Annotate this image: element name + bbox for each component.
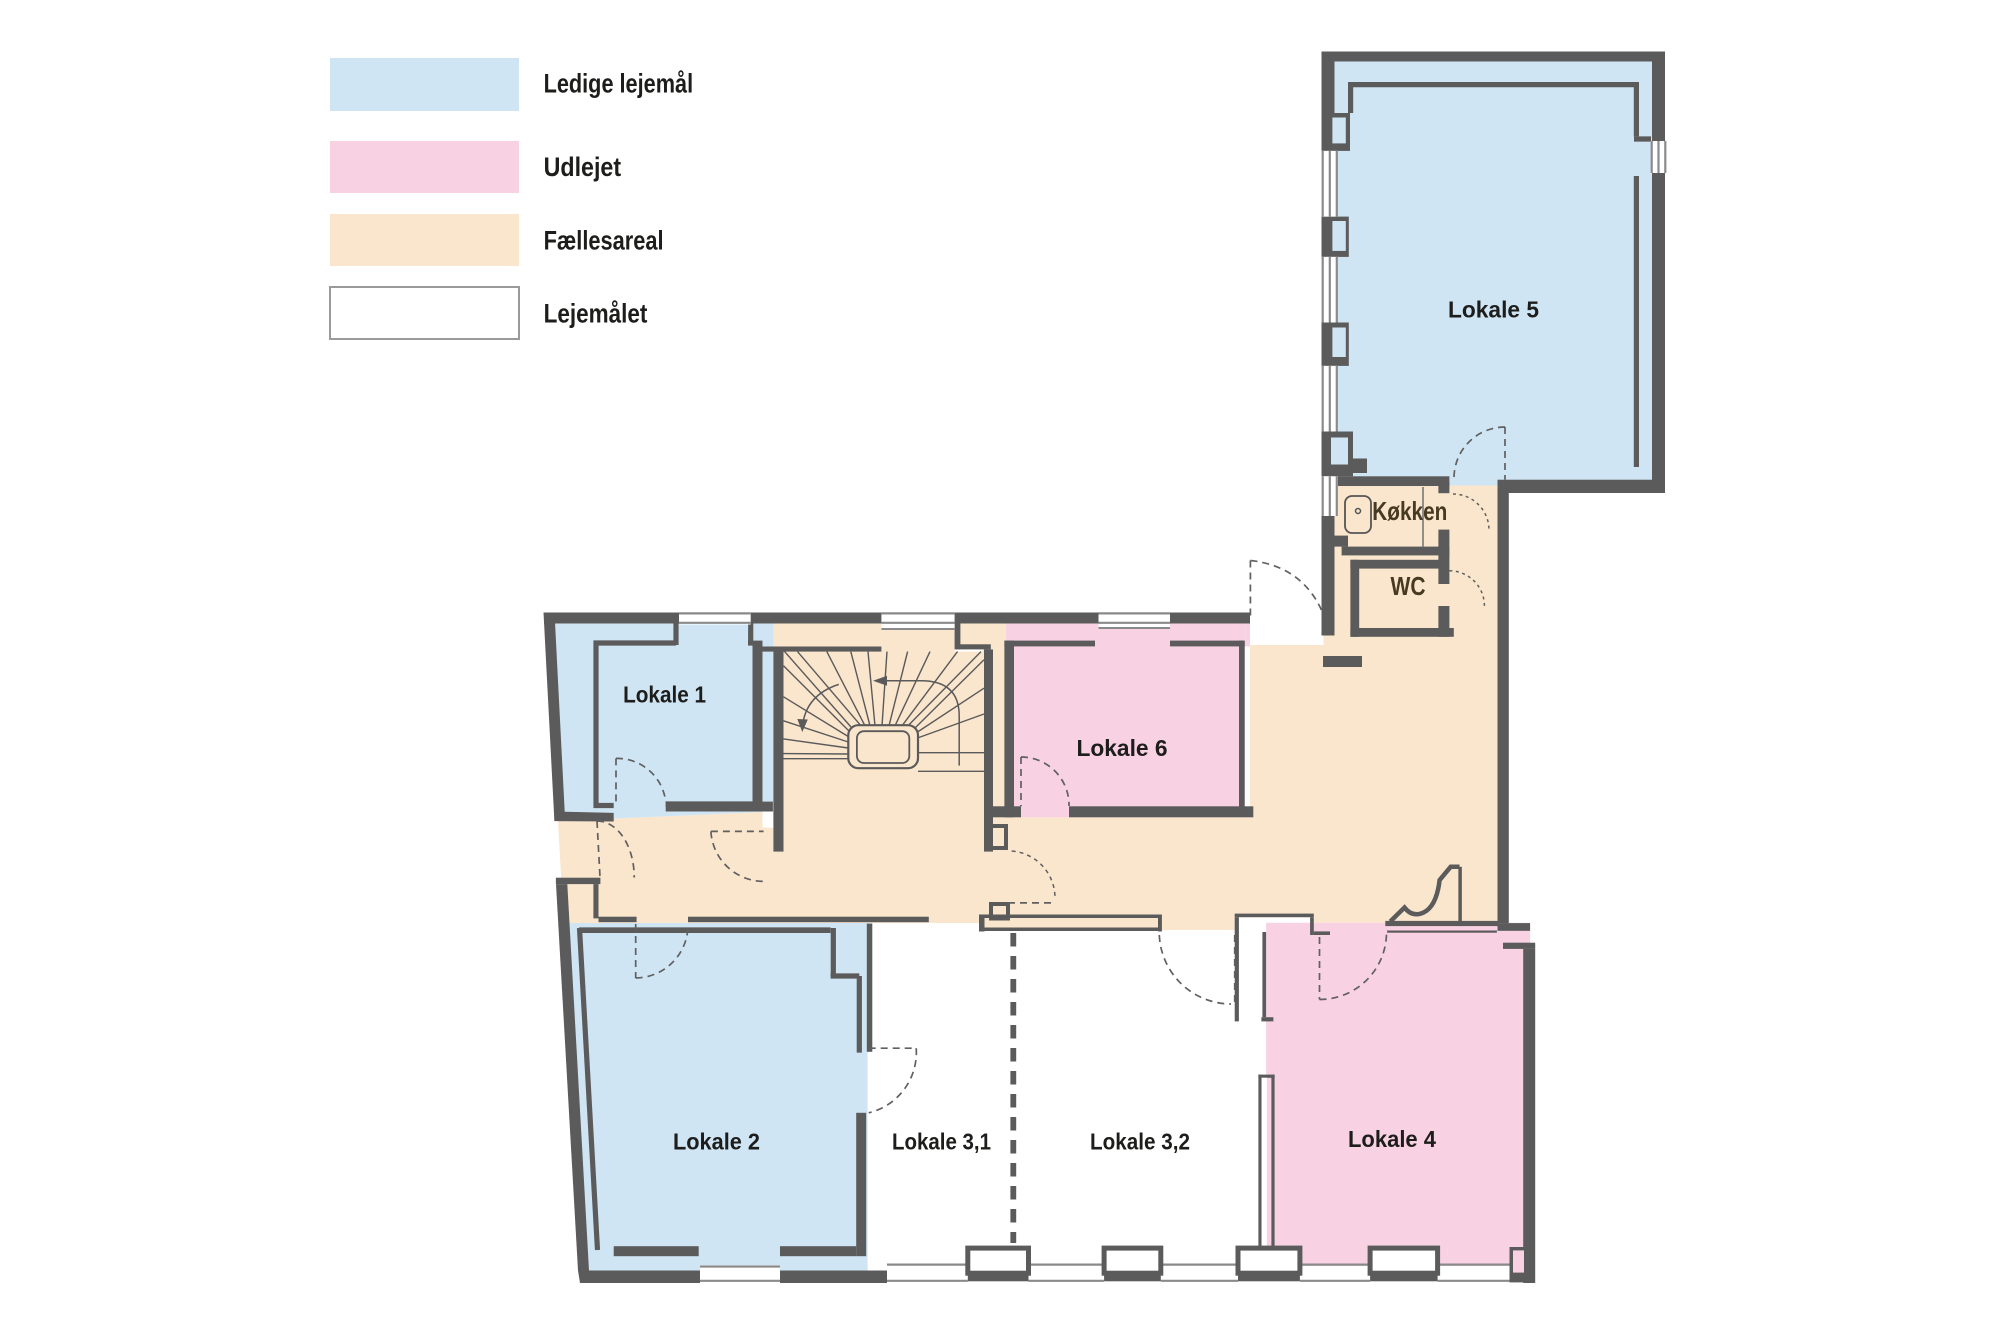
svg-text:Lejemålet: Lejemålet	[544, 299, 648, 329]
svg-text:Lokale 1: Lokale 1	[623, 681, 706, 707]
svg-text:Udlejet: Udlejet	[544, 152, 622, 182]
svg-text:Lokale 3,2: Lokale 3,2	[1090, 1129, 1190, 1155]
svg-text:Ledige lejemål: Ledige lejemål	[544, 69, 694, 99]
svg-text:Lokale 2: Lokale 2	[673, 1129, 760, 1155]
svg-text:Køkken: Køkken	[1372, 496, 1447, 526]
svg-text:Fællesareal: Fællesareal	[544, 226, 664, 256]
svg-text:Lokale 5: Lokale 5	[1448, 297, 1539, 323]
svg-text:Lokale 3,1: Lokale 3,1	[892, 1129, 991, 1155]
svg-text:WC: WC	[1391, 571, 1426, 601]
svg-text:Lokale 6: Lokale 6	[1077, 735, 1168, 761]
svg-text:Lokale 4: Lokale 4	[1348, 1126, 1436, 1152]
